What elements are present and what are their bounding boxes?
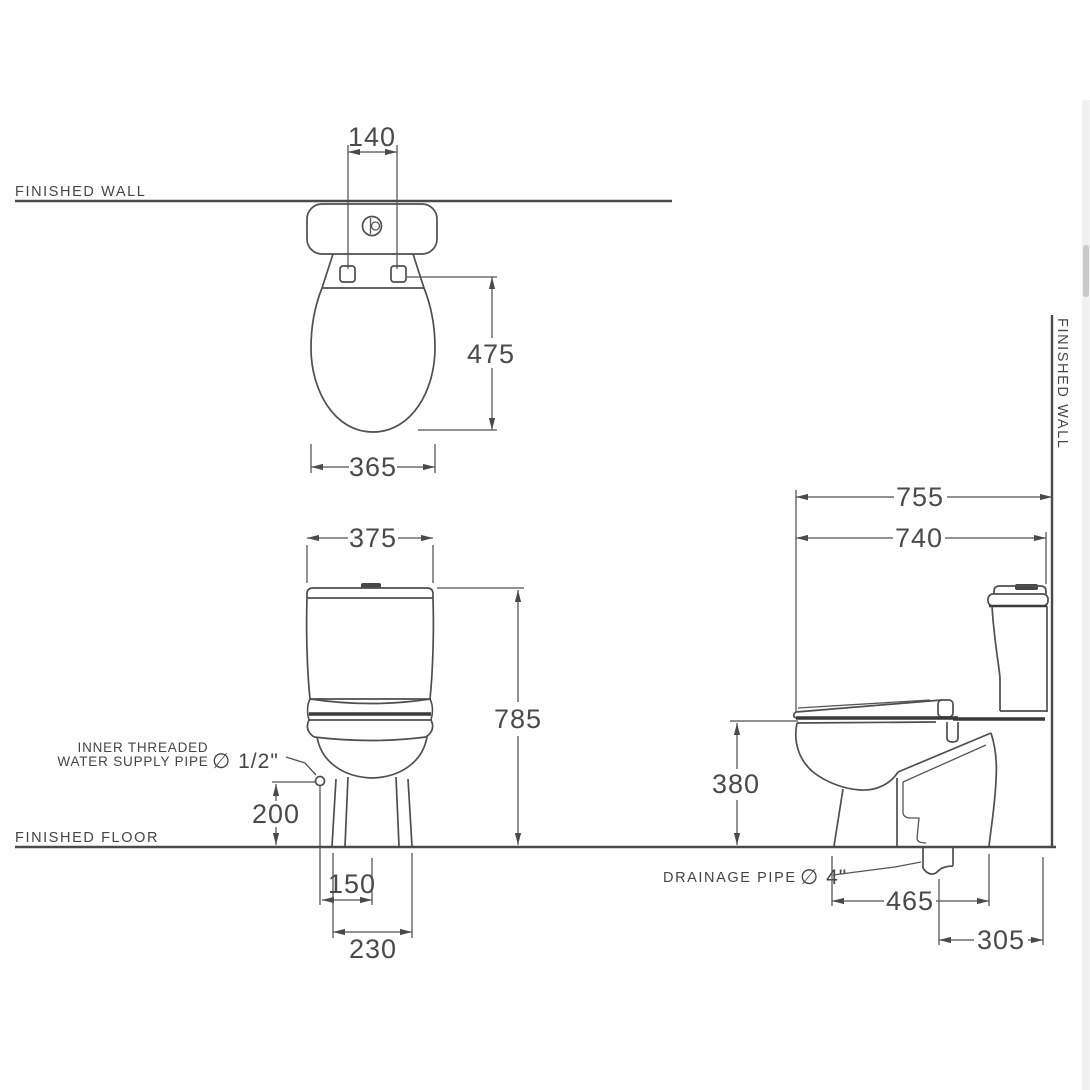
side-tank-lid [988,594,1048,606]
dim-740: 740 [796,523,1046,584]
side-seat-front-tip [794,712,796,718]
dim-380-label: 380 [712,769,760,799]
dim-140-label: 140 [348,122,396,152]
finished-wall-top: FINISHED WALL [15,184,672,201]
side-trap-top [898,733,991,772]
front-leg-left-inner [345,777,348,846]
side-tank-button [1015,584,1038,590]
front-leg-right-inner [396,777,399,846]
technical-drawing-page: FINISHED WALL 140 [0,0,1090,1090]
side-trap-inner-detail [903,782,926,843]
dim-375-label: 375 [349,523,397,553]
dim-740-label: 740 [895,523,943,553]
dim-365-label: 365 [349,452,397,482]
supply-label-line2: WATER SUPPLY PIPE [57,754,208,769]
scrollbar-thumb[interactable] [1083,245,1089,297]
dim-200-label: 200 [252,799,300,829]
drain-pipe [923,847,953,874]
side-leg-front [834,789,843,846]
dim-755-label: 755 [896,482,944,512]
hinge-bolt-right [391,266,406,282]
dim-465-label: 465 [886,886,934,916]
front-rim-right [426,720,433,737]
side-seat-lid-top [796,700,942,712]
drain-label: DRAINAGE PIPE [663,870,797,886]
dim-375: 375 [307,523,433,583]
drain-callout: DRAINAGE PIPE ∅ 4" [663,862,921,889]
supply-leader-line [286,757,316,775]
dim-305: 305 [939,857,1043,955]
front-rim-left [307,720,314,737]
finished-wall-right-label: FINISHED WALL [1054,318,1070,449]
side-tank-front [992,606,1000,711]
dim-230-label: 230 [349,934,397,964]
side-bowl-outline [796,723,898,790]
side-hinge-bolt [947,722,958,742]
finished-wall-top-label: FINISHED WALL [15,184,146,200]
side-seat-ring-bottom [797,722,936,723]
front-leg-left-outer [332,779,336,846]
top-view-seat [311,288,435,432]
front-leg-right-outer [408,779,412,846]
dim-150: 150 [322,858,376,905]
front-seat-edge-left [308,699,310,720]
front-bowl-dome [317,737,427,778]
dim-365: 365 [311,444,435,482]
dim-150-label: 150 [328,869,376,899]
scrollbar-track[interactable] [1082,100,1090,1090]
front-view-tank [307,588,434,699]
dim-200: 200 [252,782,315,845]
dim-475-label: 475 [467,339,515,369]
side-view: FINISHED WALL DRAINAGE P [663,315,1070,955]
dim-785: 785 [437,588,542,845]
finished-floor: FINISHED FLOOR [15,830,1056,847]
dim-785-label: 785 [494,704,542,734]
toilet-installation-diagram: FINISHED WALL 140 [0,0,1090,1090]
dim-380: 380 [712,721,798,845]
front-view: INNER THREADED WATER SUPPLY PIPE ∅ 1/2" … [57,523,542,964]
finished-floor-label: FINISHED FLOOR [15,830,159,846]
top-view: 140 475 365 [307,122,515,482]
supply-pipe-circle [316,777,325,786]
seat-flare-right [413,254,424,288]
drain-diameter-label: ∅ 4" [800,866,847,889]
supply-label-line1: INNER THREADED [78,740,209,755]
seat-flare-left [322,254,333,288]
side-seat-hinge [938,700,953,717]
dim-465: 465 [832,854,989,916]
dim-305-label: 305 [977,925,1025,955]
front-seat-edge-right [430,699,432,720]
front-rim-bottom [314,737,426,741]
side-trap-inner-slant [903,745,986,782]
side-trap-back [989,733,996,846]
supply-diameter-label: ∅ 1/2" [212,750,279,773]
